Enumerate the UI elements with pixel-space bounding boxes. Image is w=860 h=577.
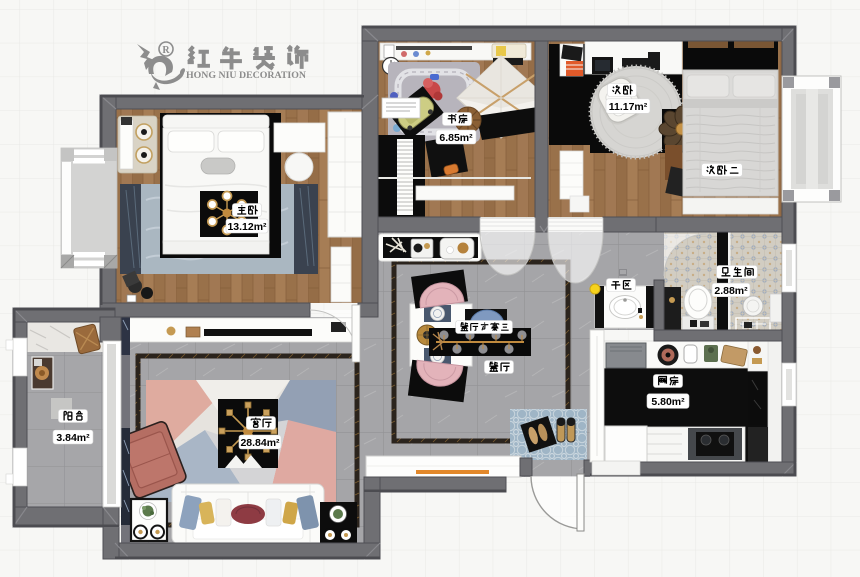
svg-text:3.84m²: 3.84m² — [56, 432, 90, 444]
svg-text:6.85m²: 6.85m² — [439, 132, 473, 144]
svg-text:HONG NIU DECORATION: HONG NIU DECORATION — [186, 71, 306, 81]
svg-text:R: R — [162, 45, 170, 56]
svg-text:2.88m²: 2.88m² — [714, 285, 748, 297]
svg-text:5.80m²: 5.80m² — [651, 396, 685, 408]
svg-text:11.17m²: 11.17m² — [609, 101, 648, 113]
svg-text:28.84m²: 28.84m² — [240, 437, 280, 449]
svg-text:13.12m²: 13.12m² — [227, 221, 267, 233]
